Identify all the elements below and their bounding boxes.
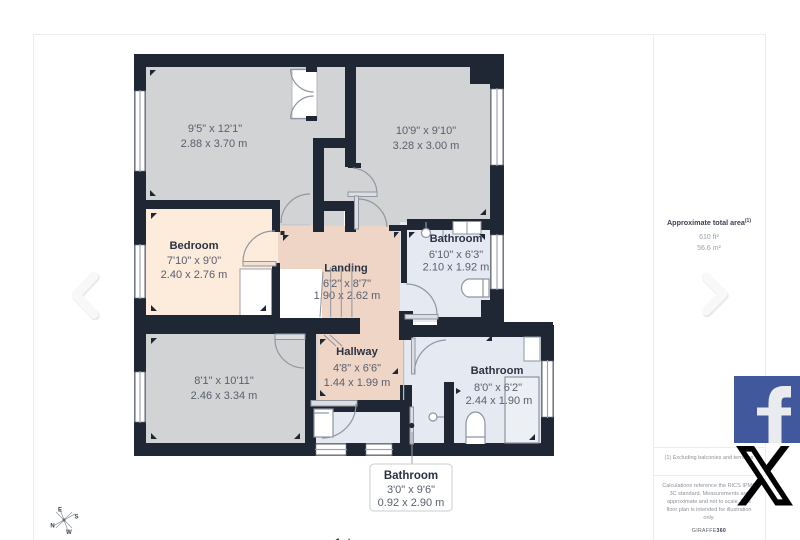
svg-text:610 ft²: 610 ft² xyxy=(699,234,720,241)
svg-text:1.44 x 1.99 m: 1.44 x 1.99 m xyxy=(324,377,391,389)
svg-text:2.46 x 3.34 m: 2.46 x 3.34 m xyxy=(191,390,258,402)
svg-text:Hallway: Hallway xyxy=(336,346,378,358)
svg-text:only.: only. xyxy=(703,515,715,521)
svg-text:2.10 x 1.92 m: 2.10 x 1.92 m xyxy=(423,262,490,274)
svg-text:2.44 x 1.90 m: 2.44 x 1.90 m xyxy=(466,395,533,407)
svg-text:E: E xyxy=(58,508,62,514)
svg-text:56.6 m²: 56.6 m² xyxy=(697,245,721,252)
svg-text:10'9" x 9'10": 10'9" x 9'10" xyxy=(396,125,456,137)
svg-text:3'0" x 9'6": 3'0" x 9'6" xyxy=(387,484,435,496)
svg-text:Bedroom: Bedroom xyxy=(169,240,218,252)
svg-text:8'0" x 6'2": 8'0" x 6'2" xyxy=(474,382,522,394)
svg-text:3C standard. Measurements are: 3C standard. Measurements are xyxy=(670,491,749,497)
svg-text:3.28 x 3.00 m: 3.28 x 3.00 m xyxy=(393,140,460,152)
svg-text:(1) Excluding balconies and te: (1) Excluding balconies and terraces xyxy=(665,455,754,461)
svg-text:6'10" x 6'3": 6'10" x 6'3" xyxy=(429,249,483,261)
svg-text:1.90 x 2.62 m: 1.90 x 2.62 m xyxy=(314,290,381,302)
svg-text:Approximate total area(1): Approximate total area(1) xyxy=(667,218,751,227)
svg-text:Bathroom: Bathroom xyxy=(430,233,483,245)
svg-text:2.40 x 2.76 m: 2.40 x 2.76 m xyxy=(161,269,228,281)
svg-text:4'8" x 6'6": 4'8" x 6'6" xyxy=(333,363,381,375)
svg-text:0.92 x 2.90 m: 0.92 x 2.90 m xyxy=(378,497,445,509)
svg-text:Calculations reference the RIC: Calculations reference the RICS IPMS xyxy=(662,483,756,489)
svg-text:Bathroom: Bathroom xyxy=(471,365,524,377)
svg-text:2.88 x 3.70 m: 2.88 x 3.70 m xyxy=(181,138,248,150)
svg-text:9'5" x 12'1": 9'5" x 12'1" xyxy=(188,123,242,135)
svg-text:GIRAFFE360: GIRAFFE360 xyxy=(692,528,726,534)
svg-text:7'10" x 9'0": 7'10" x 9'0" xyxy=(167,255,221,267)
svg-text:W: W xyxy=(66,530,72,536)
svg-text:N: N xyxy=(50,524,54,530)
svg-text:Bathroom: Bathroom xyxy=(384,470,438,482)
svg-text:S: S xyxy=(74,515,78,521)
svg-text:6'2" x 8'7": 6'2" x 8'7" xyxy=(323,278,371,290)
svg-text:8'1" x 10'11": 8'1" x 10'11" xyxy=(194,375,254,387)
svg-text:floor plan is intended for ill: floor plan is intended for illustration xyxy=(667,507,752,513)
